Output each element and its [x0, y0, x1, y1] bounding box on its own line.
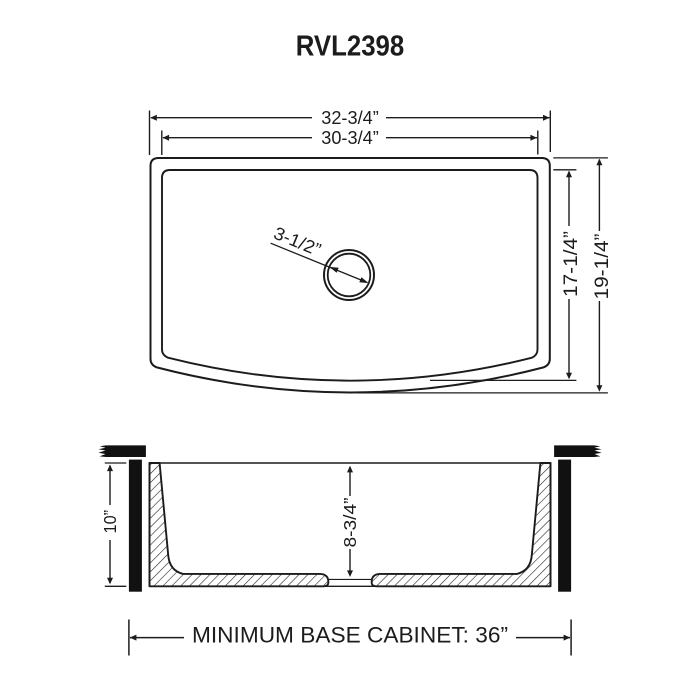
- svg-text:17-1/4”: 17-1/4”: [561, 231, 582, 297]
- svg-text:30-3/4”: 30-3/4”: [321, 128, 379, 148]
- svg-text:19-1/4”: 19-1/4”: [592, 234, 613, 300]
- svg-text:32-3/4”: 32-3/4”: [321, 108, 379, 128]
- svg-text:RVL2398: RVL2398: [296, 31, 405, 63]
- svg-text:10”: 10”: [100, 510, 120, 534]
- svg-text:8-3/4”: 8-3/4”: [340, 497, 360, 547]
- svg-text:MINIMUM BASE CABINET: 36”: MINIMUM BASE CABINET: 36”: [192, 622, 508, 647]
